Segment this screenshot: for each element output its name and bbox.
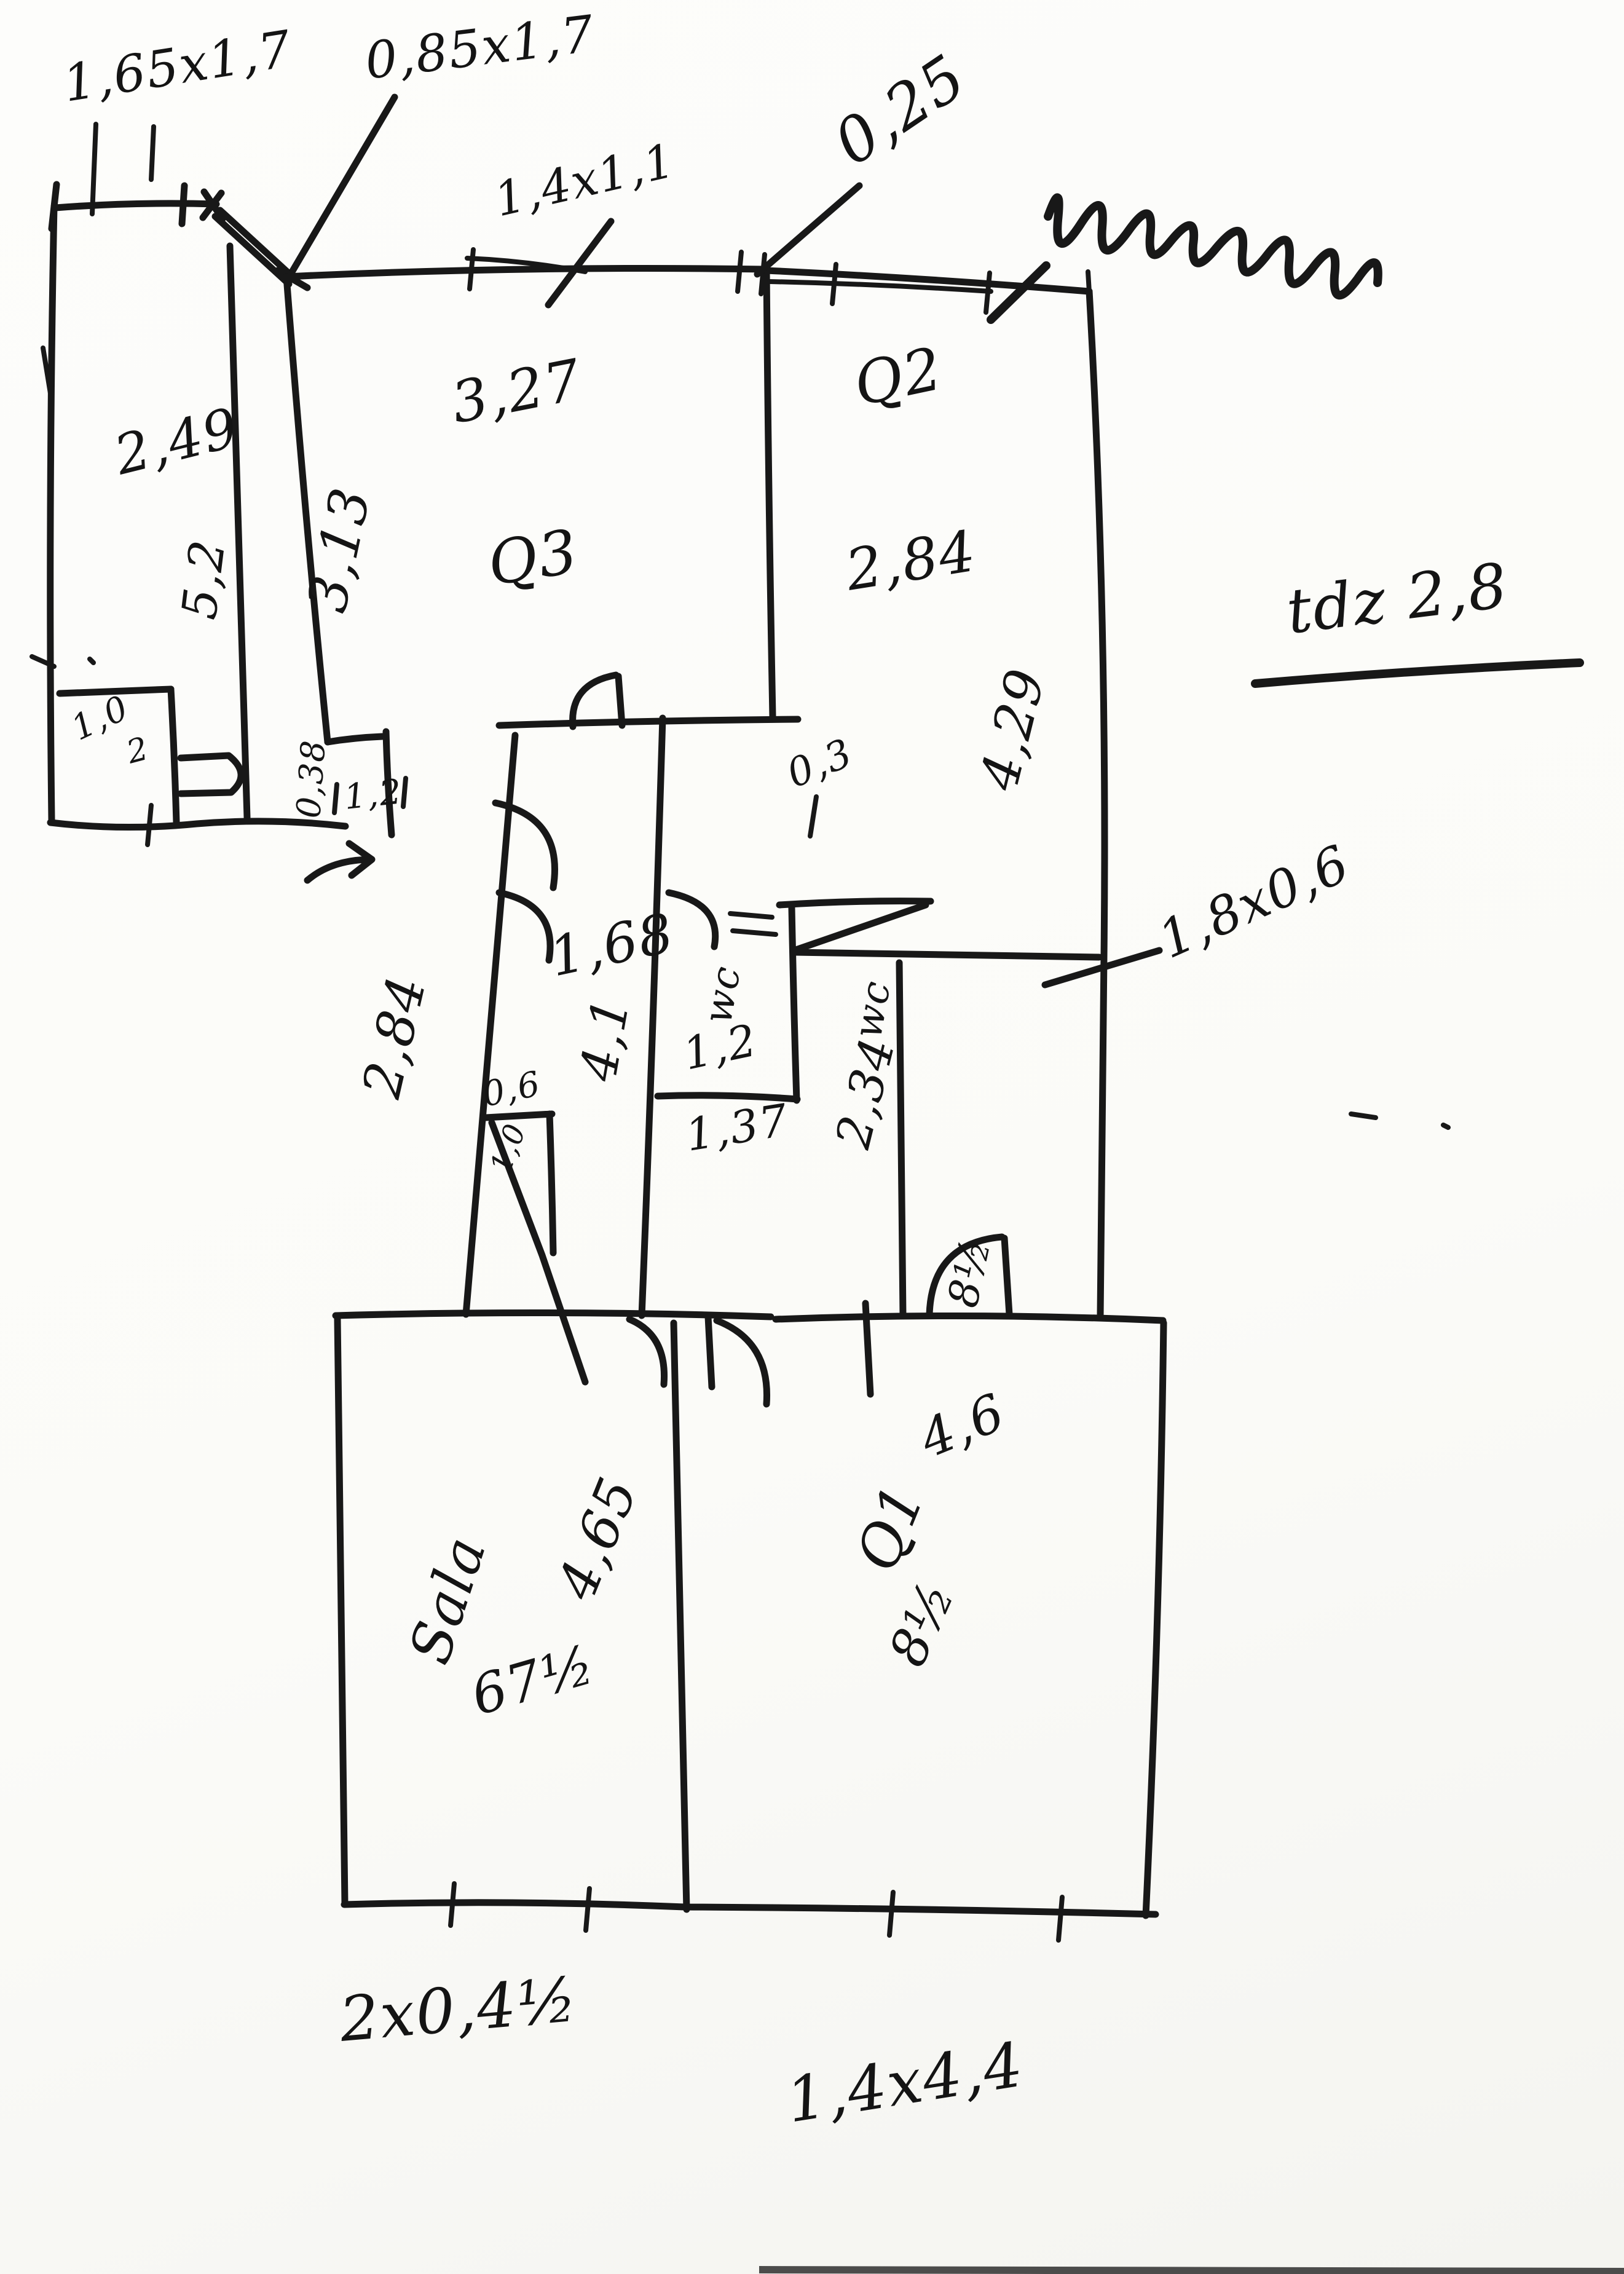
- sink-fixture: [181, 756, 241, 794]
- wall-bath-right: [792, 908, 797, 1100]
- wall-annex-right: [171, 689, 176, 823]
- dim-bottom-left: 2x0,4½: [336, 1964, 581, 2056]
- wall-q3-top: [286, 269, 766, 277]
- wall-corridor-left: [466, 735, 515, 1314]
- tick-door-right: [403, 778, 406, 807]
- witness-line-1: [92, 124, 96, 214]
- door-arc-bath: [669, 893, 715, 947]
- leader-to-corner: [291, 97, 395, 273]
- wardrobe-dim: 1,8x0,6: [1149, 833, 1358, 970]
- entry-arrow: [307, 843, 372, 880]
- scan-edge-bottom: [759, 2270, 1624, 2272]
- underline-height-note: [1255, 663, 1580, 684]
- q1-name: Q1: [843, 1475, 938, 1580]
- wardrobe-diagonal: [794, 905, 926, 950]
- sala-width: 4,65: [545, 1468, 650, 1609]
- dim-bottom-mid: 1,4x4,4: [781, 2028, 1028, 2136]
- wall-wc-top: [794, 952, 1099, 957]
- tick-sala-bottom-1: [451, 1884, 454, 1925]
- corridor-width: 1,68: [544, 901, 680, 989]
- dim-14x11: 1,4x1,1: [489, 133, 680, 227]
- wall-q1-right: [1146, 1323, 1164, 1916]
- wall-q3-right: [767, 270, 773, 716]
- dim-165x17: 1,65x1,7: [59, 20, 296, 114]
- tick-left-room-bottom: [148, 805, 151, 845]
- door-width: 1,2: [342, 772, 404, 818]
- tick-q2-top-2: [986, 273, 990, 312]
- room-left-height: 5,2: [172, 536, 237, 622]
- tick-sala-bottom-2: [586, 1889, 589, 1930]
- q2-width: 2,84: [841, 518, 981, 604]
- tick-left-room-top-right: [182, 186, 184, 224]
- scanned-floor-plan-sketch: 1,65x1,7 0,85x1,7 1,4x1,1 0,25 tdz 2,8 2…: [0, 0, 1624, 2274]
- corridor-side-dim: 2,84: [351, 970, 439, 1104]
- door-arc-corridor-2: [499, 893, 550, 960]
- stray-marks-right: [1351, 1114, 1448, 1127]
- sala-area: 67½: [464, 1632, 602, 1727]
- tick-q3-top-2: [738, 252, 741, 291]
- bath-width: 1,2: [679, 1014, 762, 1080]
- q1-width: 4,6: [911, 1381, 1014, 1470]
- wardrobe-top: [779, 901, 931, 905]
- tick-q1-bottom-2: [1058, 1897, 1062, 1940]
- equal-dashes: [730, 914, 776, 934]
- q3-name: Q3: [483, 516, 583, 600]
- wall-left-room-left: [50, 207, 54, 820]
- annex-dim-b: 2: [122, 730, 153, 772]
- room-left-width: 2,49: [108, 395, 245, 488]
- stray-mark-left: [32, 657, 93, 666]
- wall-right-long: [1089, 291, 1105, 1316]
- wall-bottom-rooms-top: [336, 1313, 1163, 1321]
- wall-left-room-bottom: [50, 821, 345, 827]
- wall-q3-bottom-left: [328, 736, 382, 742]
- height-note: tdz 2,8: [1283, 550, 1512, 648]
- witness-line-2: [151, 127, 154, 180]
- wall-sala-left: [337, 1319, 345, 1903]
- dim-03: 0,3: [781, 730, 859, 797]
- wall-gap-dim: 0,38: [289, 738, 333, 819]
- q2-height: 4,29: [968, 662, 1058, 797]
- leader-window-q2: [757, 186, 859, 274]
- wall-left-room-top: [55, 203, 216, 208]
- q1-area: 8½: [877, 1572, 967, 1675]
- wall-bottom: [344, 1903, 1156, 1914]
- wall-room-divider: [674, 1323, 687, 1909]
- tick-door-left: [334, 784, 337, 813]
- wall-wc-left: [899, 963, 903, 1316]
- dim-025: 0,25: [821, 41, 979, 180]
- tick-q1-bottom-1: [889, 1892, 893, 1935]
- q2-name: Q2: [848, 334, 948, 419]
- dim-085x17: 0,85x1,7: [362, 5, 598, 91]
- tick-03: [810, 797, 816, 836]
- sala-name: Sala: [396, 1528, 499, 1672]
- wc-length: 2,34: [826, 1032, 907, 1155]
- bath-length: 1,37: [682, 1094, 792, 1161]
- corridor-length: 4,1: [569, 993, 641, 1086]
- wall-left-room-right: [230, 246, 247, 818]
- tick-q2-top-1: [832, 264, 836, 304]
- leader-window-q3: [548, 221, 611, 305]
- wall-corridor-right: [642, 718, 663, 1316]
- tick-q3-top-1: [470, 250, 473, 289]
- floor-plan-drawing: 1,65x1,7 0,85x1,7 1,4x1,1 0,25 tdz 2,8 2…: [0, 0, 1624, 2274]
- wall-corridor-top: [499, 719, 798, 725]
- illegible-scribble: [991, 197, 1378, 320]
- q3-width: 3,27: [446, 347, 587, 436]
- wc-area: 8½: [939, 1233, 1001, 1311]
